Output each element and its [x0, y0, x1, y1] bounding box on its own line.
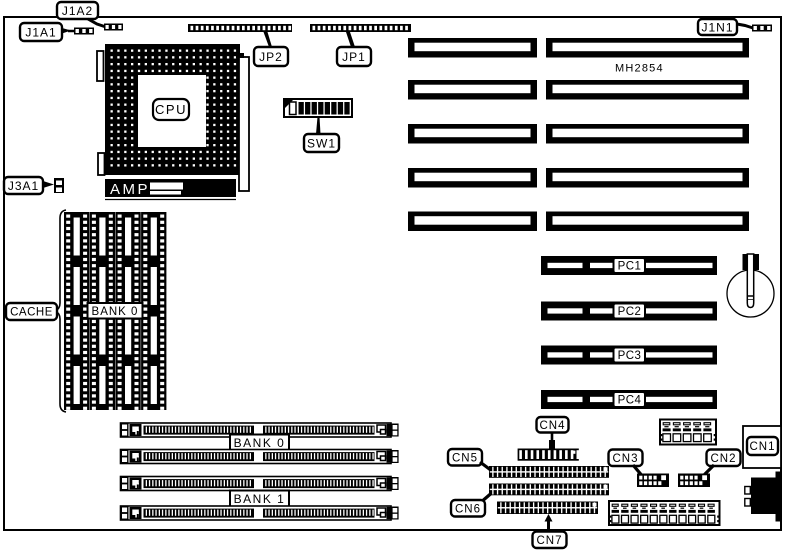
svg-text:AMP: AMP	[110, 181, 150, 198]
svg-text:PC2: PC2	[618, 306, 642, 318]
svg-text:CPU: CPU	[155, 102, 187, 117]
svg-text:BANK 0: BANK 0	[92, 306, 139, 318]
svg-text:CN5: CN5	[452, 452, 478, 464]
svg-text:J3A1: J3A1	[8, 179, 39, 193]
svg-text:BANK 0: BANK 0	[234, 436, 286, 450]
svg-text:BANK 1: BANK 1	[234, 492, 286, 506]
svg-text:J1A2: J1A2	[62, 4, 93, 18]
svg-text:JP2: JP2	[259, 50, 283, 64]
svg-text:CN4: CN4	[539, 420, 565, 432]
svg-text:SW1: SW1	[307, 136, 336, 150]
svg-text:JP1: JP1	[342, 50, 366, 64]
svg-text:CN2: CN2	[710, 453, 736, 465]
svg-text:CN7: CN7	[536, 535, 562, 547]
svg-text:CN1: CN1	[749, 441, 775, 453]
svg-text:PC4: PC4	[618, 395, 642, 407]
svg-text:PC3: PC3	[618, 350, 642, 362]
svg-text:CACHE: CACHE	[10, 307, 53, 319]
svg-text:MH2854: MH2854	[615, 63, 664, 75]
svg-text:CN6: CN6	[455, 503, 481, 515]
svg-text:PC1: PC1	[618, 261, 642, 273]
svg-text:J1A1: J1A1	[25, 25, 56, 39]
svg-text:CN3: CN3	[612, 453, 638, 465]
svg-text:J1N1: J1N1	[701, 20, 733, 34]
